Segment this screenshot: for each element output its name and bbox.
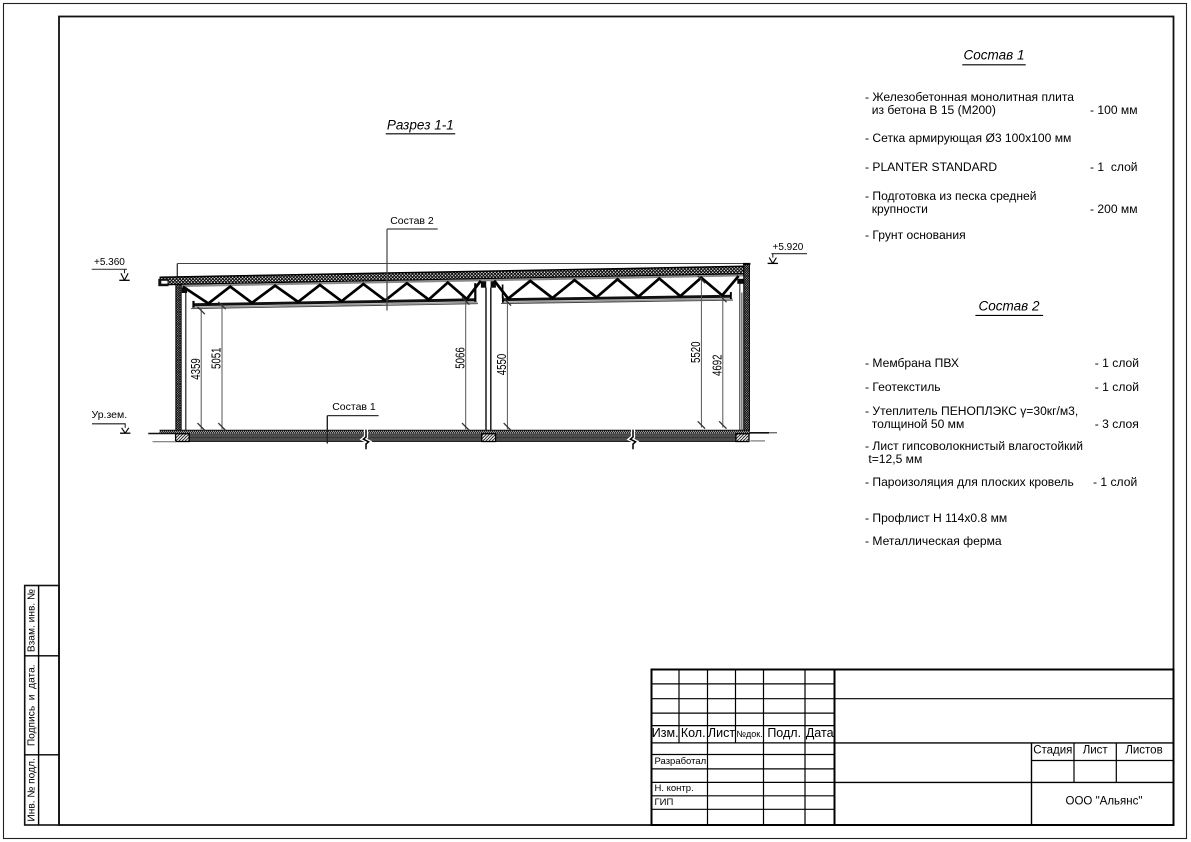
svg-text:4359: 4359: [189, 358, 203, 380]
svg-text:5520: 5520: [689, 342, 703, 364]
svg-text:Инв. № подл.: Инв. № подл.: [26, 758, 37, 821]
svg-text:Взам. инв. №: Взам. инв. №: [26, 589, 37, 652]
svg-text:4692: 4692: [710, 354, 724, 376]
svg-text:5051: 5051: [210, 348, 224, 370]
svg-text:5066: 5066: [453, 347, 467, 369]
svg-text:Подпись и дата.: Подпись и дата.: [26, 664, 37, 746]
svg-text:4550: 4550: [495, 354, 509, 376]
